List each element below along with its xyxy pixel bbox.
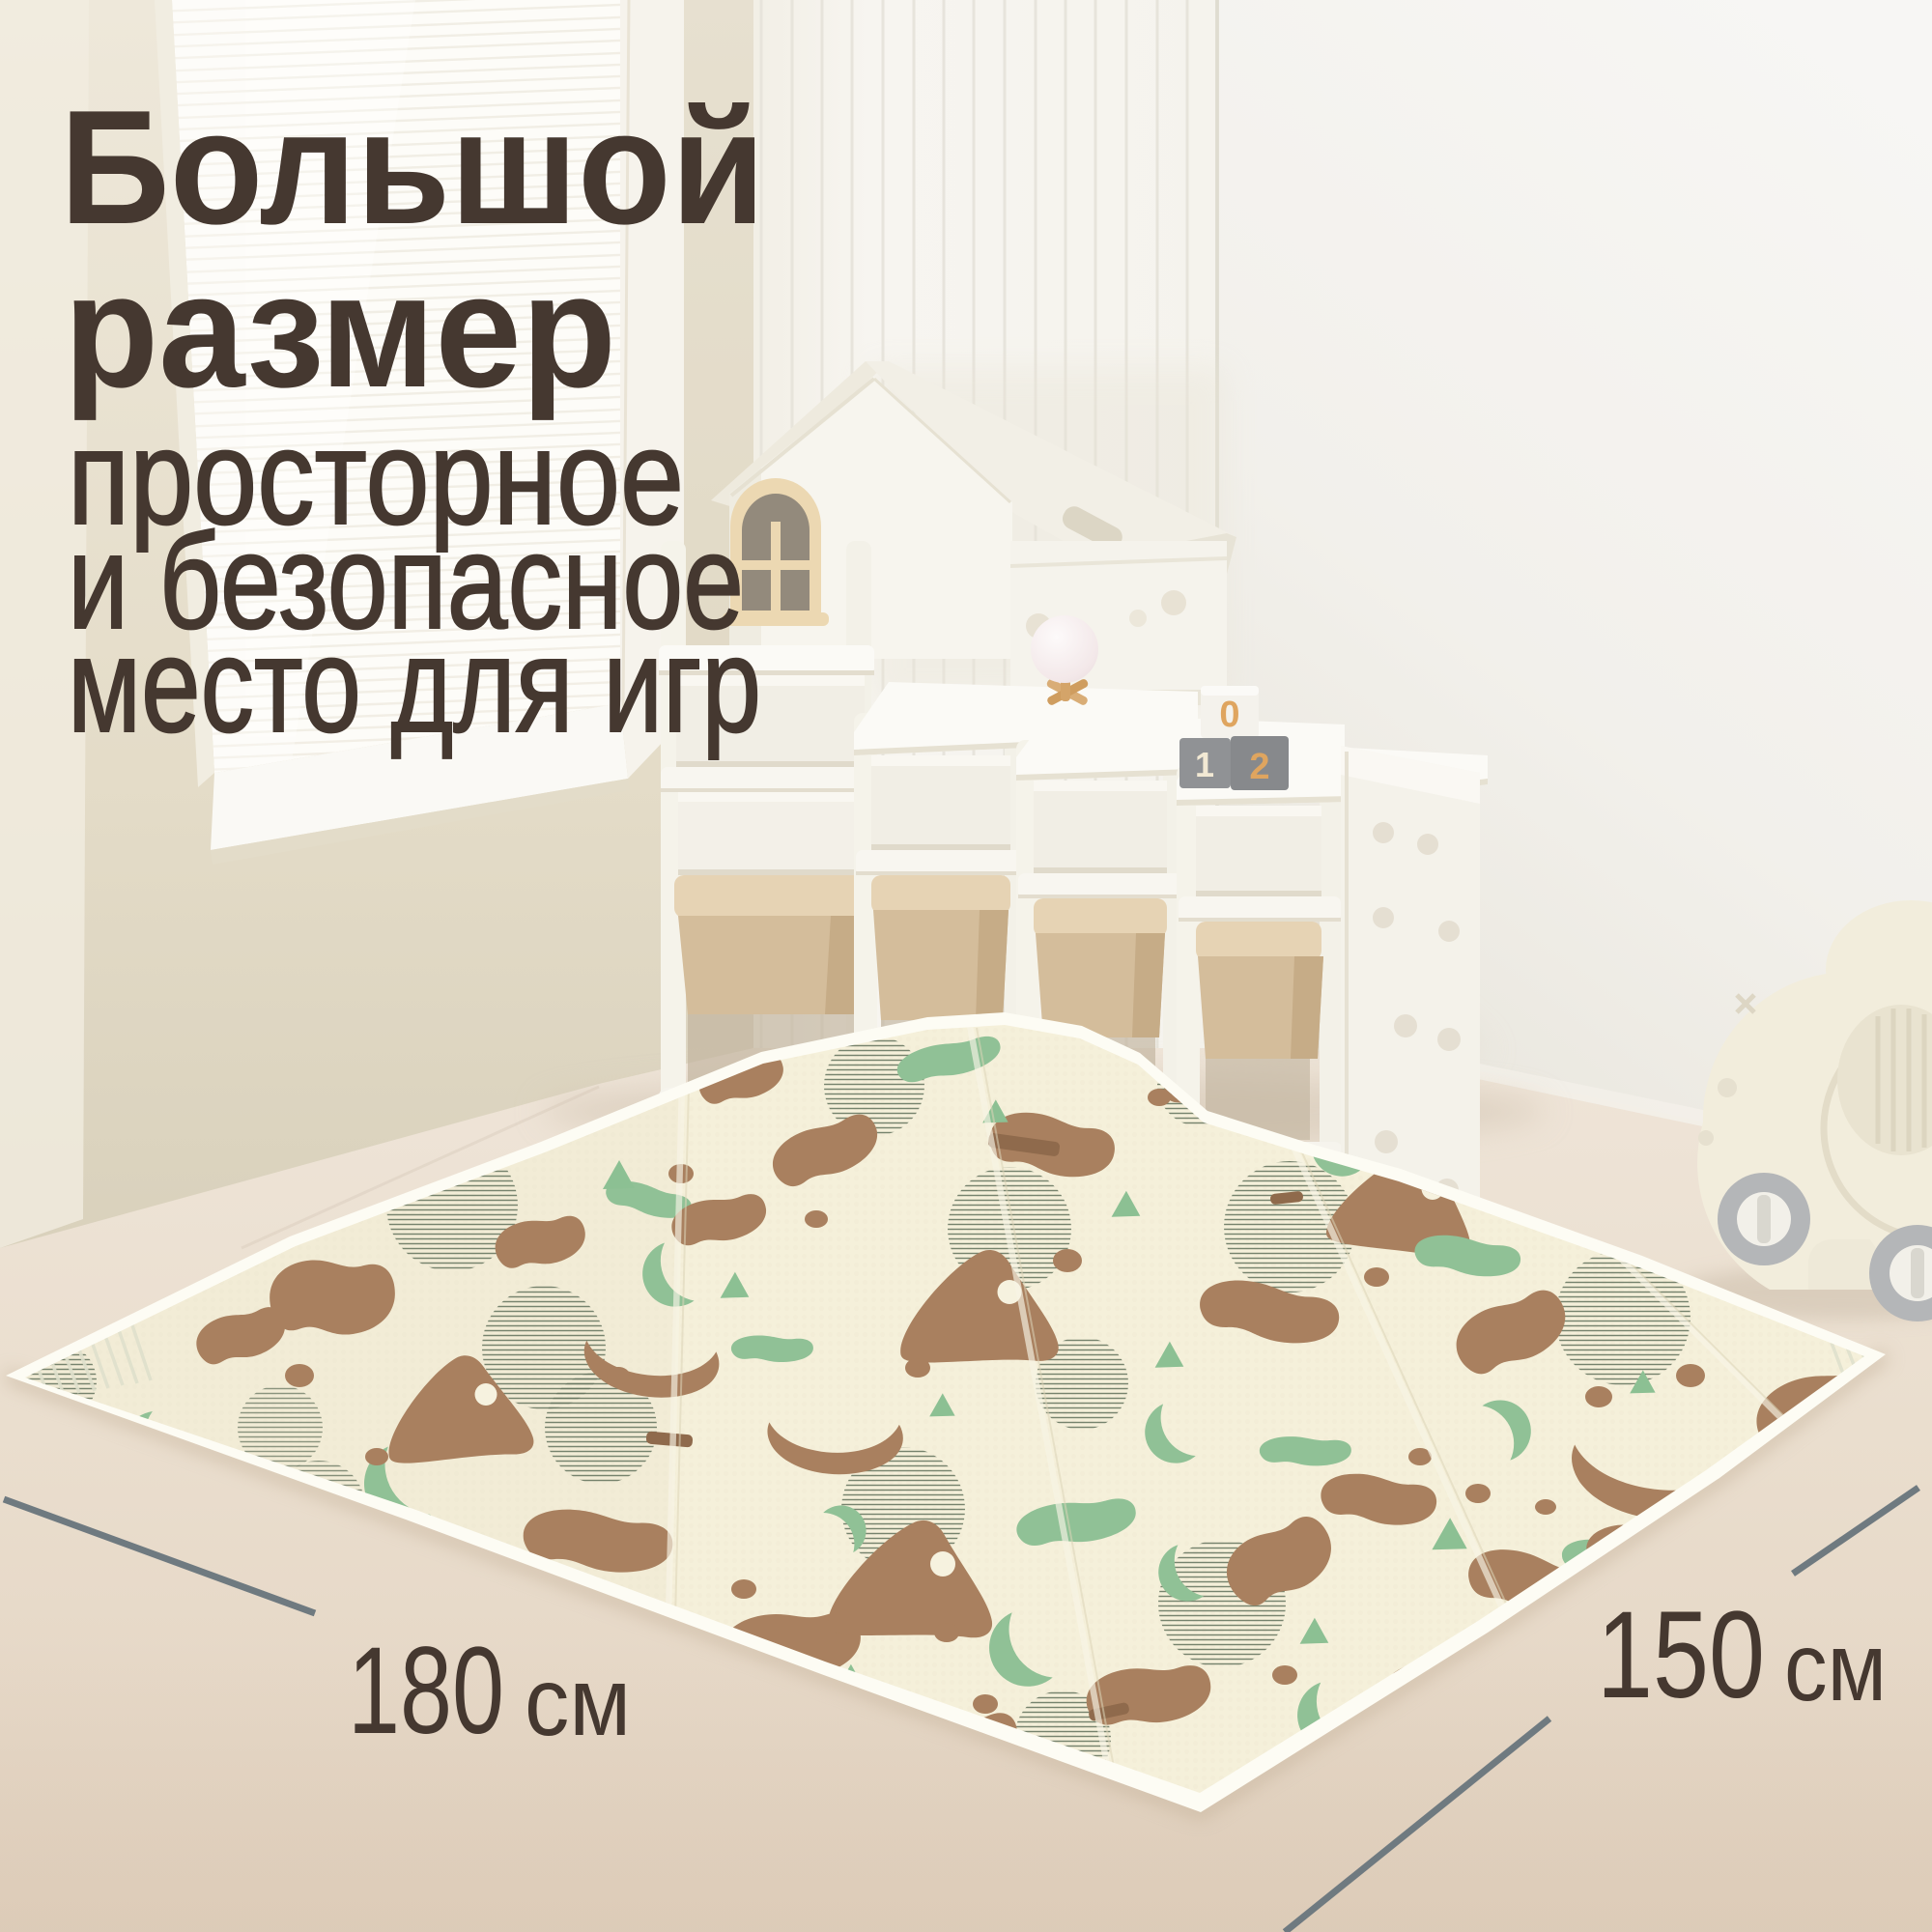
svg-text:см: см: [525, 1648, 631, 1756]
svg-text:150: 150: [1597, 1586, 1765, 1724]
svg-text:Большой: Большой: [60, 76, 765, 258]
svg-text:размер: размер: [64, 240, 616, 421]
svg-text:1: 1: [1195, 745, 1214, 784]
svg-text:см: см: [1784, 1613, 1887, 1721]
svg-text:2: 2: [1249, 747, 1269, 787]
svg-text:0: 0: [1219, 695, 1239, 735]
svg-text:место для игр: место для игр: [68, 609, 761, 760]
svg-text:180: 180: [348, 1622, 504, 1760]
